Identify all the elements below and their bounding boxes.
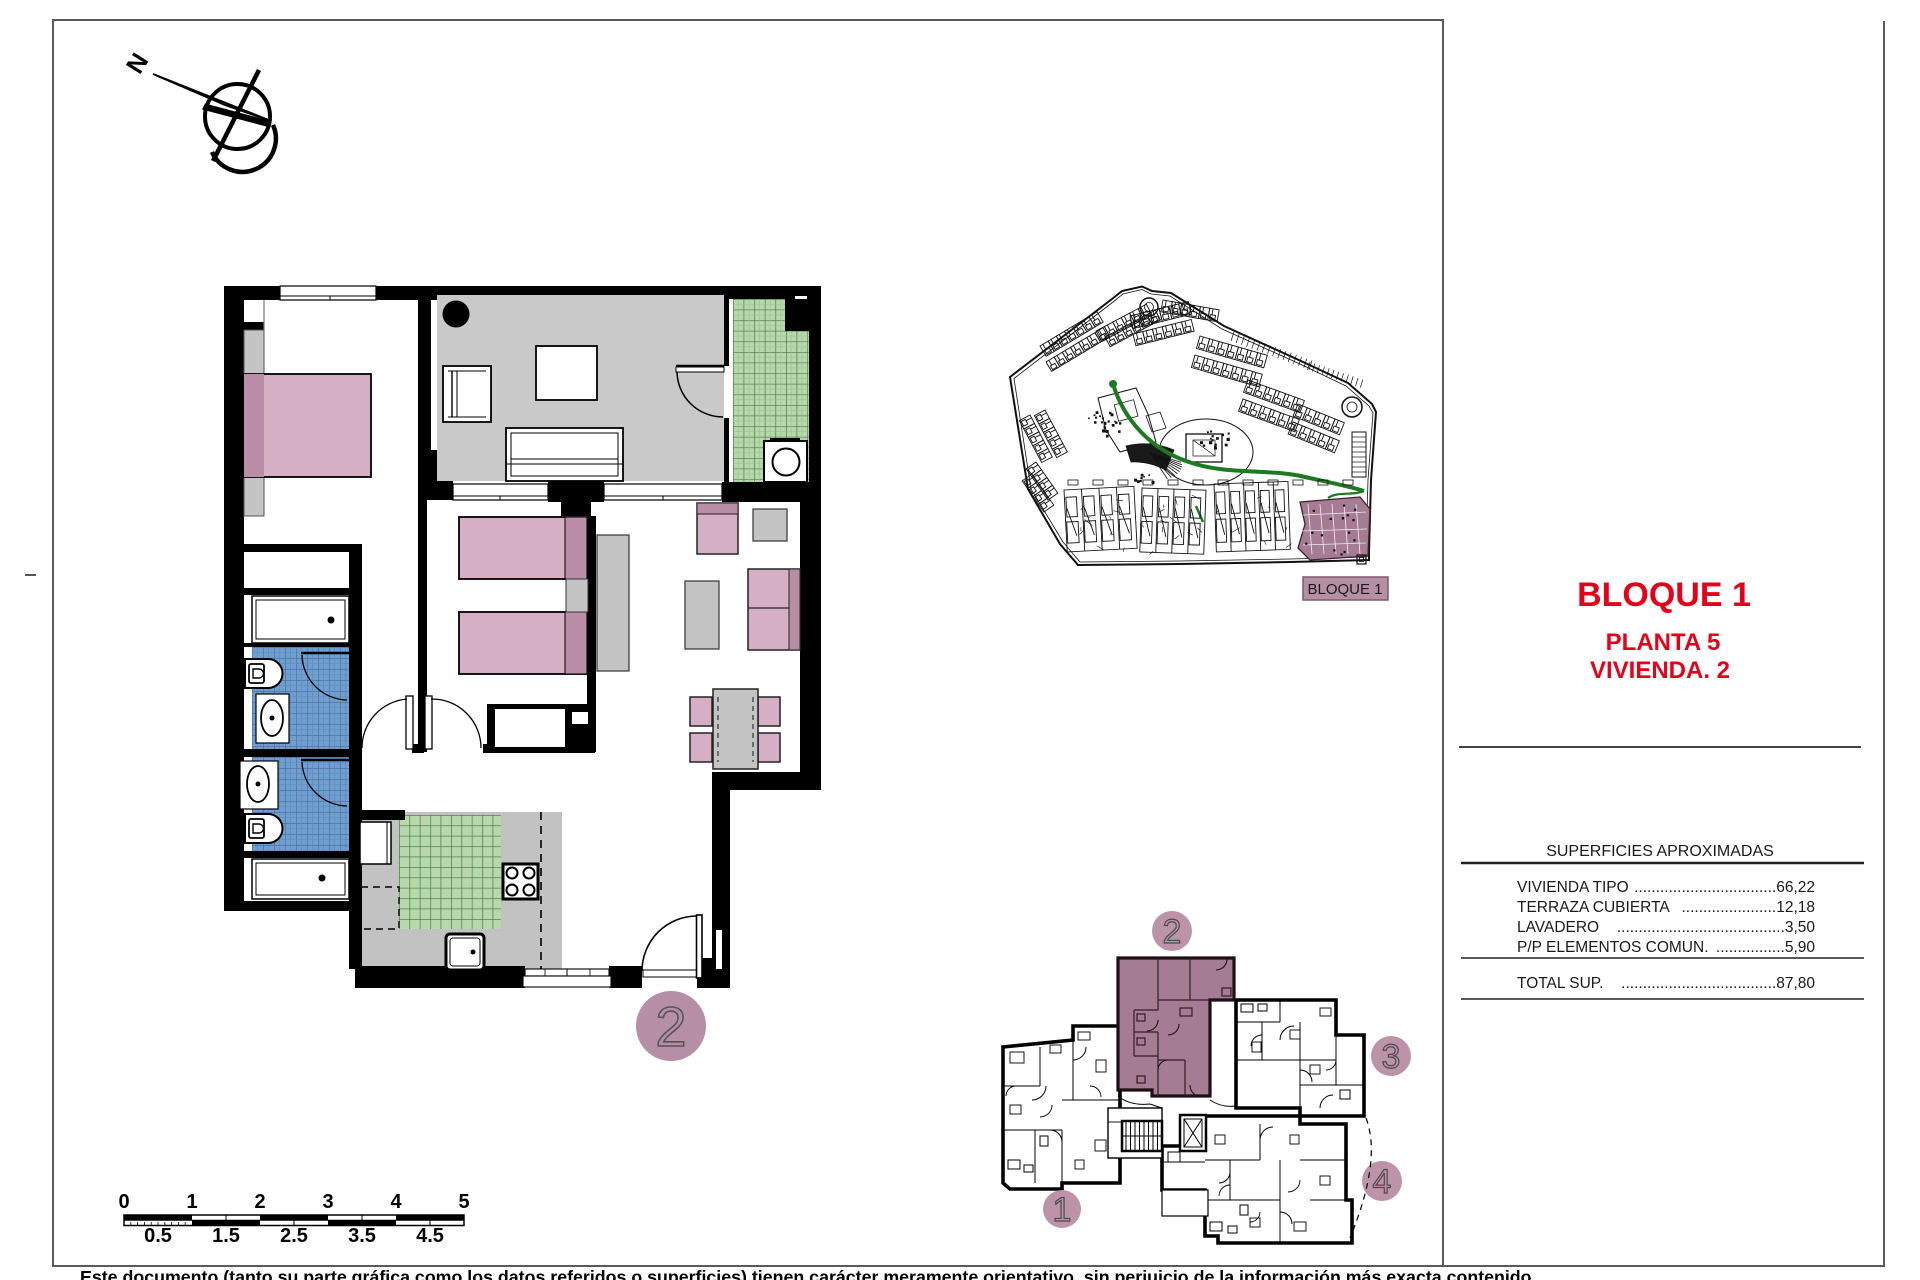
svg-text:..............................: .................................66,22 [1634, 879, 1815, 896]
svg-text:2: 2 [254, 1191, 265, 1213]
svg-text:P/P ELEMENTOS COMUN.: P/P ELEMENTOS COMUN. [1517, 939, 1709, 956]
svg-text:1: 1 [1053, 1191, 1072, 1229]
svg-text:1.5: 1.5 [212, 1225, 240, 1247]
svg-text:2: 2 [1163, 913, 1182, 951]
svg-text:N: N [121, 48, 154, 78]
svg-text:1: 1 [186, 1191, 197, 1213]
svg-text:BLOQUE 1: BLOQUE 1 [1577, 576, 1751, 614]
svg-text:0.5: 0.5 [144, 1225, 172, 1247]
svg-text:3: 3 [322, 1191, 333, 1213]
svg-text:3.5: 3.5 [348, 1225, 376, 1247]
svg-text:VIVIENDA. 2: VIVIENDA. 2 [1590, 657, 1730, 684]
svg-text:3: 3 [1382, 1038, 1401, 1076]
svg-text:2: 2 [655, 995, 686, 1058]
svg-text:PLANTA 5: PLANTA 5 [1606, 629, 1721, 656]
svg-text:4: 4 [1373, 1163, 1392, 1201]
svg-text:0: 0 [118, 1191, 129, 1213]
svg-text:................5,90: ................5,90 [1716, 939, 1815, 956]
svg-text:VIVIENDA TIPO: VIVIENDA TIPO [1517, 879, 1629, 896]
svg-text:TOTAL SUP.: TOTAL SUP. [1517, 975, 1603, 992]
svg-text:2.5: 2.5 [280, 1225, 308, 1247]
svg-text:4.5: 4.5 [416, 1225, 444, 1247]
svg-text:..............................: ....................................87,8… [1621, 975, 1815, 992]
svg-text:..............................: .......................................3… [1617, 919, 1815, 936]
svg-text:SUPERFICIES APROXIMADAS: SUPERFICIES APROXIMADAS [1546, 843, 1774, 860]
svg-text:LAVADERO: LAVADERO [1517, 919, 1599, 936]
svg-text:Este documento (tanto su parte: Este documento (tanto su parte gráfica c… [80, 1267, 1532, 1280]
svg-text:BLOQUE 1: BLOQUE 1 [1307, 581, 1382, 598]
svg-text:TERRAZA CUBIERTA: TERRAZA CUBIERTA [1517, 899, 1670, 916]
svg-text:......................12,18: ......................12,18 [1681, 899, 1815, 916]
svg-text:5: 5 [458, 1191, 469, 1213]
svg-text:4: 4 [390, 1191, 402, 1213]
